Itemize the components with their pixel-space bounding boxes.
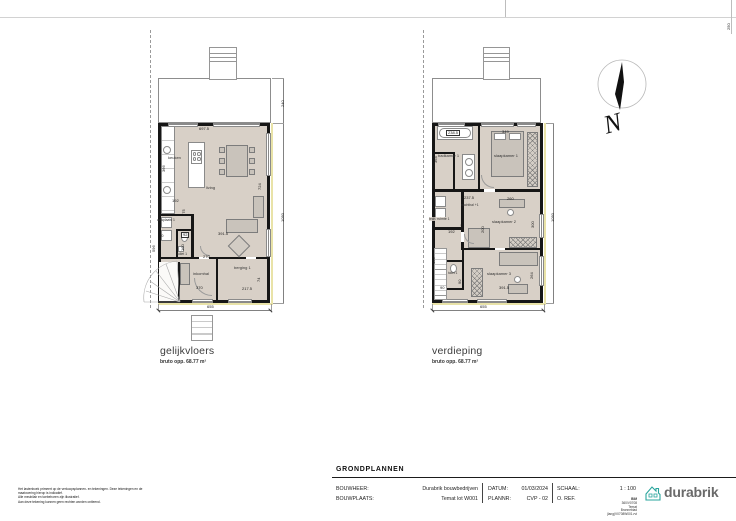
room-label-tech: tech. ruimte 1 [429, 217, 450, 221]
dim-tick [430, 308, 434, 312]
room-label-slaapkamer1: slaapkamer 1 [494, 154, 518, 158]
door-gap [495, 248, 505, 251]
room-label-berging: berging 1 [234, 266, 251, 270]
chair [219, 147, 225, 153]
room-label-wasplaats: wasplaats 1 [157, 218, 175, 222]
room-label-living: living [206, 186, 215, 190]
wall [478, 123, 481, 191]
stairs-floor [434, 248, 447, 300]
dim-ext [546, 303, 554, 304]
bouwplaats-value: Temat lot W001 [388, 496, 478, 502]
datum-label: DATUM: [488, 486, 508, 492]
room-label-slaapkamer3: slaapkamer 3 [487, 272, 511, 276]
chair [219, 169, 225, 175]
wardrobe-slaapkamer1 [527, 132, 538, 187]
dim-655: 655 [207, 305, 214, 309]
dim-1050: 1050 [551, 213, 555, 222]
dim-724: 724 [258, 183, 262, 190]
dim-90: 90 [159, 234, 163, 238]
drawing-sheet: 250 N [0, 0, 736, 521]
chair [249, 169, 255, 175]
plan-ground-title: gelijkvloers [160, 345, 214, 357]
window [481, 123, 514, 127]
insulation-right [271, 123, 274, 305]
entrance-steps [191, 315, 213, 341]
dim-240: 240 [281, 100, 285, 107]
boiler [435, 196, 446, 207]
durabrik-logo-text: durabrik [664, 484, 718, 500]
plan-ground-subtitle: bruto opp. 68.77 m² [160, 359, 206, 365]
sofa [226, 219, 258, 233]
window [517, 123, 536, 127]
room-label-inkomhal: inkomhal [193, 272, 209, 276]
chimney-ground [209, 47, 237, 80]
dim-300: 300 [531, 221, 535, 228]
sheet-top-line [0, 17, 736, 18]
wall [445, 288, 464, 290]
wall [462, 250, 464, 290]
window [477, 299, 507, 304]
dim-264: 264 [530, 272, 534, 279]
dim-217-5: 217.5 [242, 287, 252, 291]
titleblock-title: GRONDPLANNEN [336, 466, 404, 473]
wardrobe-slaapkamer2 [509, 237, 537, 248]
dim-90-rot: 90 [458, 280, 462, 284]
titleblock-divider [482, 483, 483, 503]
chimney-floor [483, 47, 510, 80]
basin [465, 158, 473, 166]
wardrobe-slaapkamer3 [471, 268, 483, 297]
dim-250: 250 [727, 23, 731, 30]
door-gap [246, 257, 256, 260]
dim-1050: 1050 [281, 213, 285, 222]
disclaimer-line: Aan deze tekening kunnen geen rechten wo… [18, 500, 153, 504]
dim-160: 160 [181, 244, 185, 251]
sideboard [253, 196, 264, 218]
terrace-floor [432, 78, 541, 123]
dim-192: 192 [172, 199, 179, 203]
dim-366: 366 [162, 165, 166, 172]
hob-burner [193, 152, 197, 156]
plan-floor-subtitle: bruto opp. 68.77 m² [432, 359, 478, 365]
wall [191, 214, 194, 259]
dim-175: 175 [182, 209, 186, 216]
chimney-line [483, 57, 510, 58]
north-needle [615, 62, 624, 110]
kitchen-sink [163, 186, 171, 194]
titleblock-rule [332, 477, 736, 478]
dim-line [432, 310, 544, 311]
dim-tick [156, 308, 160, 312]
bouwheer-label: BOUWHEER: [336, 486, 369, 492]
disclaimer: Het lastenboek primeert op de verkoopspl… [18, 487, 153, 504]
chair [507, 209, 514, 216]
chimney-line [209, 53, 237, 54]
dim-ext [273, 303, 284, 304]
dim-ext [546, 123, 554, 124]
chair [249, 158, 255, 164]
oref-label: O. REF. [557, 496, 576, 502]
dim-260: 260 [507, 197, 514, 201]
dim-697-5: 697.5 [199, 127, 209, 131]
dim-596: 596 [152, 245, 156, 252]
sheet-top-tick [505, 0, 506, 17]
file-reference: BIM 360/V0708 Temat Bronneblad (lang)V07… [592, 498, 637, 517]
dim-74: 74 [257, 278, 261, 282]
dim-434: 434 [460, 224, 464, 231]
dining-table [226, 145, 248, 177]
desk-slaapkamer3 [508, 284, 528, 294]
chimney-line [483, 61, 510, 62]
terrace-ground [158, 78, 271, 123]
titleblock-divider [552, 483, 553, 503]
wall [445, 260, 464, 262]
disclaimer-line: Het lastenboek primeert op de verkoopspl… [18, 487, 153, 495]
window [539, 256, 544, 286]
hob-burner [197, 152, 201, 156]
schaal-value: 1 : 100 [598, 486, 636, 492]
wall [176, 229, 193, 231]
entrance-door [192, 299, 213, 304]
north-arrow: N [592, 58, 656, 140]
plan-floor-title: verdieping [432, 345, 482, 357]
kitchen-sink [163, 146, 171, 154]
bouwheer-value: Durabrik bouwbedrijven [388, 486, 478, 492]
dim-200: 200 [481, 226, 485, 233]
kitchen-island [188, 142, 205, 188]
property-line-right [423, 30, 424, 308]
plannr-value: CVP - 02 [510, 496, 548, 502]
pillow [509, 133, 521, 140]
chair [219, 158, 225, 164]
window [228, 299, 252, 304]
room-label-toilet: toilet 1 [448, 271, 457, 275]
dim-364: 364 [434, 156, 438, 163]
room-label-badkamer: badkamer 1 [438, 154, 459, 158]
dim-349: 349 [502, 130, 509, 134]
hob-burner [193, 157, 197, 161]
dim-655: 655 [480, 305, 487, 309]
bed-slaapkamer3 [499, 252, 538, 266]
dim-192: 192 [448, 230, 455, 234]
schaal-label: SCHAAL: [557, 486, 580, 492]
north-letter: N [599, 107, 626, 140]
chimney-line [209, 61, 237, 62]
room-label-slaapkamer2: slaapkamer 2 [492, 220, 516, 224]
plannr-label: PLANNR: [488, 496, 511, 502]
dim-238-5: 238.5 [446, 130, 460, 136]
datum-value: 01/03/2024 [510, 486, 548, 492]
bouwplaats-label: BOUWPLAATS: [336, 496, 374, 502]
dim-line [158, 310, 271, 311]
dim-270: 270 [203, 255, 210, 259]
window [213, 123, 260, 127]
dim-391-5: 391.5 [218, 232, 228, 236]
chimney-line [483, 53, 510, 54]
dim-90: 90 [440, 286, 444, 290]
chair [249, 147, 255, 153]
file-ref-line: (lang)V0708W001.rvt [592, 513, 637, 517]
dim-ext [272, 78, 284, 79]
chimney-line [209, 57, 237, 58]
hob-burner [197, 157, 201, 161]
room-label-nachthal: nachthal +1 [461, 203, 479, 207]
dim-ext [273, 123, 284, 124]
wall [216, 259, 219, 301]
dim-92: 92 [181, 232, 189, 238]
dim-370: 370 [196, 286, 203, 290]
insulation-right [544, 123, 547, 305]
dim-439: 439 [432, 257, 436, 264]
room-label-toilet: toilet 1 [177, 252, 187, 256]
stairs-fan [142, 258, 182, 303]
room-label-keuken: keuken [168, 156, 181, 160]
sheet-top-dimline [731, 0, 732, 34]
window [266, 229, 271, 257]
durabrik-house-icon [644, 485, 662, 507]
basin [465, 169, 473, 177]
window [266, 133, 271, 176]
pillow [494, 133, 506, 140]
durabrik-logo: durabrik [644, 484, 736, 504]
door-gap [484, 189, 495, 192]
dim-237-5: 237.5 [464, 196, 474, 200]
dim-391-5: 391.5 [499, 286, 509, 290]
window [539, 214, 544, 238]
chair [514, 276, 521, 283]
